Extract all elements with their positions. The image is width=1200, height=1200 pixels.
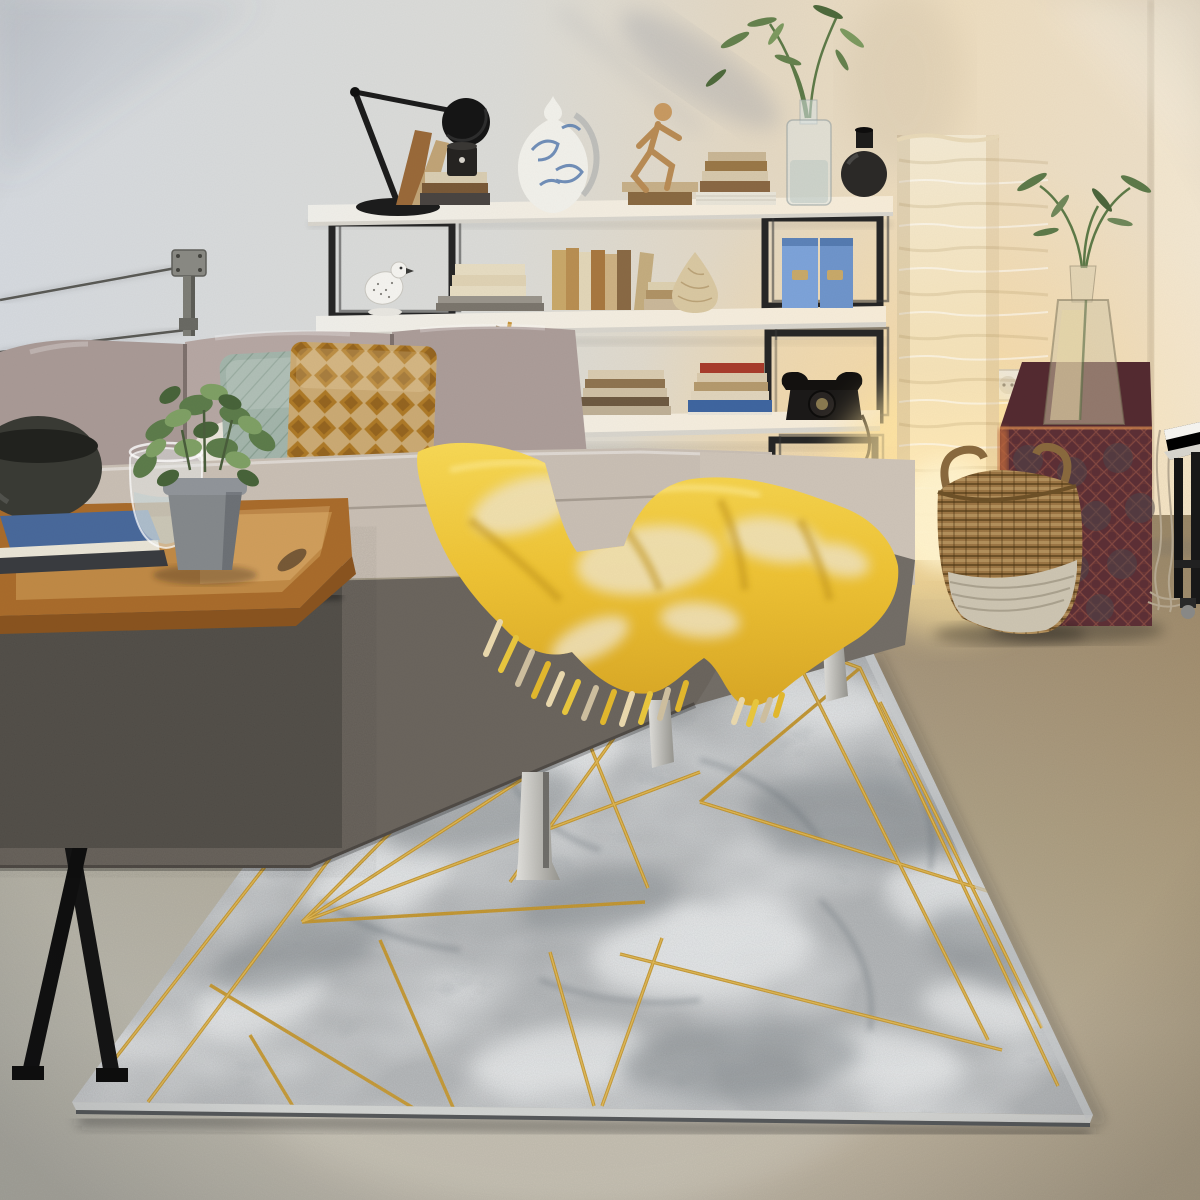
living-room-photo [0,0,1200,1200]
vignette [0,0,1200,1200]
